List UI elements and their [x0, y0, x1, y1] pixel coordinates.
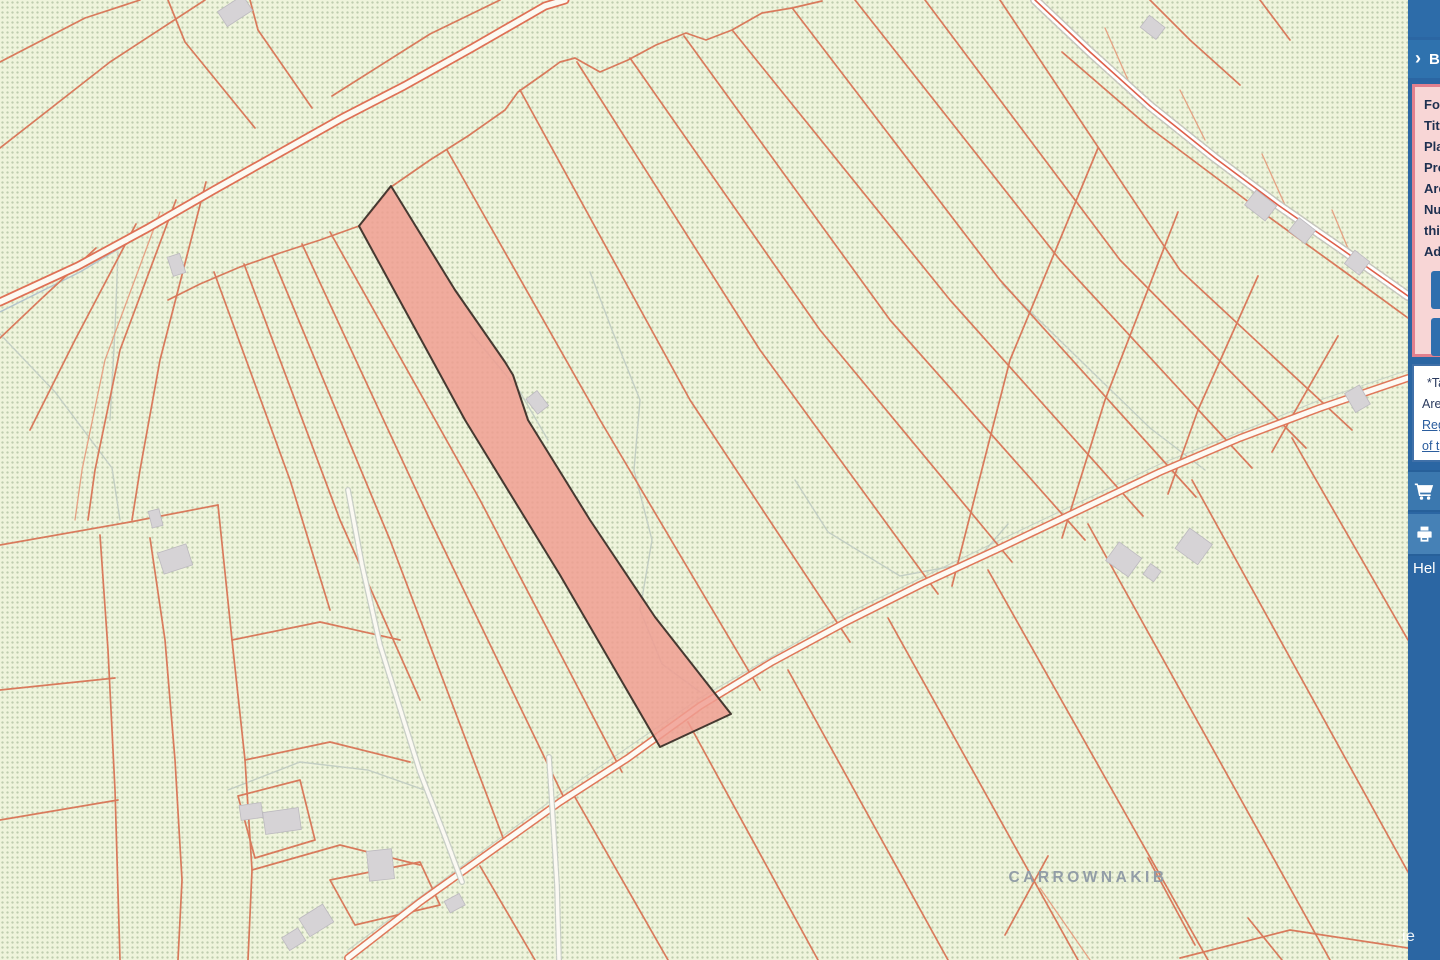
folio-info-line: Fol	[1424, 94, 1440, 115]
buildings	[148, 0, 1370, 951]
terms-link[interactable]: of t	[1422, 436, 1440, 457]
folio-info-line: Nu	[1424, 199, 1440, 220]
farm-lanes	[348, 490, 559, 960]
panel-toggle-button[interactable]: › B	[1408, 40, 1440, 78]
highlighted-parcel[interactable]	[359, 186, 731, 747]
disclaimer-panel: *Ta Area Reg of t	[1412, 364, 1440, 462]
printer-icon	[1415, 525, 1434, 544]
folio-info-line: Titl	[1424, 115, 1440, 136]
road-top-right	[1035, 0, 1408, 296]
folio-info-line: this	[1424, 220, 1440, 241]
folio-info-line: Add	[1424, 241, 1440, 262]
panel-action-button[interactable]	[1431, 318, 1440, 356]
folio-info-line: Are	[1424, 178, 1440, 199]
folio-info-line: Pro	[1424, 157, 1440, 178]
menu-item-cart[interactable]	[1408, 470, 1440, 512]
chevron-right-icon: ›	[1415, 49, 1421, 67]
land-registry-map-viewer: CARROWNAKIB › B Fol Titl Pla Pro Are Nu …	[0, 0, 1440, 960]
sidebar: › B Fol Titl Pla Pro Are Nu this Add H *…	[1408, 0, 1440, 960]
folio-info-panel: Fol Titl Pla Pro Are Nu this Add H	[1412, 84, 1440, 357]
disclaimer-line: Area	[1422, 394, 1440, 415]
field-path-lines	[0, 252, 1408, 950]
hide-panel-button[interactable]: H	[1431, 271, 1440, 309]
disclaimer-line: *Ta	[1422, 373, 1440, 394]
menu-item-help[interactable]: Hel	[1413, 560, 1436, 577]
panel-toggle-label: B	[1429, 51, 1440, 68]
map-canvas[interactable]: CARROWNAKIB	[0, 0, 1440, 960]
terms-link[interactable]: Reg	[1422, 415, 1440, 436]
site-watermark: .ie	[1397, 928, 1415, 946]
cart-icon	[1414, 481, 1434, 501]
folio-info-line: Pla	[1424, 136, 1440, 157]
menu-button[interactable]	[1408, 0, 1440, 37]
road-top-left	[0, 0, 565, 302]
map-layers: CARROWNAKIB	[0, 0, 1440, 960]
menu-item-print[interactable]	[1408, 514, 1440, 556]
townland-label: CARROWNAKIB	[1008, 869, 1167, 886]
